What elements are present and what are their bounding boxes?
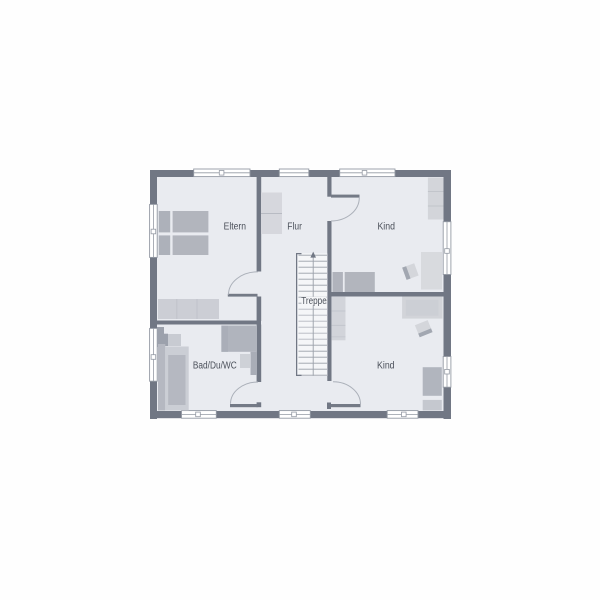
svg-text:Treppe: Treppe xyxy=(301,296,327,307)
svg-text:Kind: Kind xyxy=(377,361,395,372)
svg-text:Bad/Du/WC: Bad/Du/WC xyxy=(193,361,237,372)
svg-text:Eltern: Eltern xyxy=(224,221,246,232)
svg-text:Kind: Kind xyxy=(377,221,395,232)
svg-text:Flur: Flur xyxy=(287,221,302,232)
